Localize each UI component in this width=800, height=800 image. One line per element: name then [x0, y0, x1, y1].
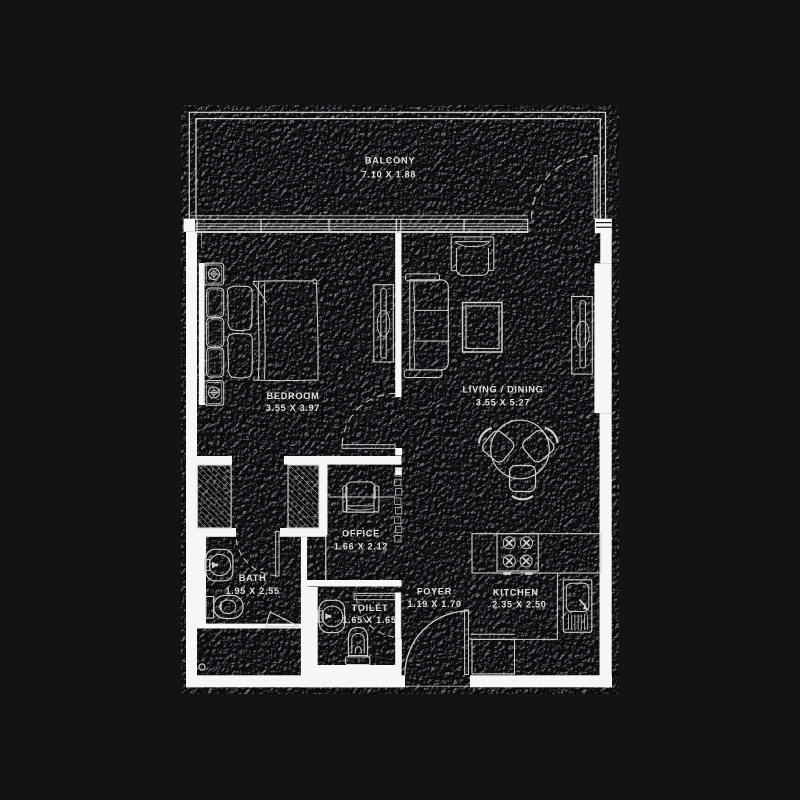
svg-text:TOILET: TOILET — [352, 603, 389, 613]
svg-text:1.66 X 2.12: 1.66 X 2.12 — [334, 542, 388, 552]
svg-text:FOYER: FOYER — [417, 586, 452, 596]
svg-text:KITCHEN: KITCHEN — [493, 587, 539, 597]
svg-text:OFFICE: OFFICE — [342, 529, 380, 539]
svg-text:3.55 X 3.97: 3.55 X 3.97 — [266, 403, 320, 413]
svg-text:2.35 X 2.50: 2.35 X 2.50 — [492, 599, 546, 609]
svg-text:BATH: BATH — [239, 573, 267, 583]
svg-text:1.19 X 1.70: 1.19 X 1.70 — [407, 599, 461, 609]
svg-text:LIVING / DINING: LIVING / DINING — [463, 385, 544, 395]
svg-text:1.95 X 2.55: 1.95 X 2.55 — [225, 586, 279, 596]
svg-text:BALCONY: BALCONY — [365, 155, 415, 165]
svg-text:BEDROOM: BEDROOM — [267, 391, 320, 401]
svg-text:1.65 X 1.65: 1.65 X 1.65 — [342, 615, 396, 625]
svg-text:7.10 X 1.88: 7.10 X 1.88 — [362, 169, 416, 179]
svg-text:3.55 X 5.27: 3.55 X 5.27 — [476, 397, 530, 407]
